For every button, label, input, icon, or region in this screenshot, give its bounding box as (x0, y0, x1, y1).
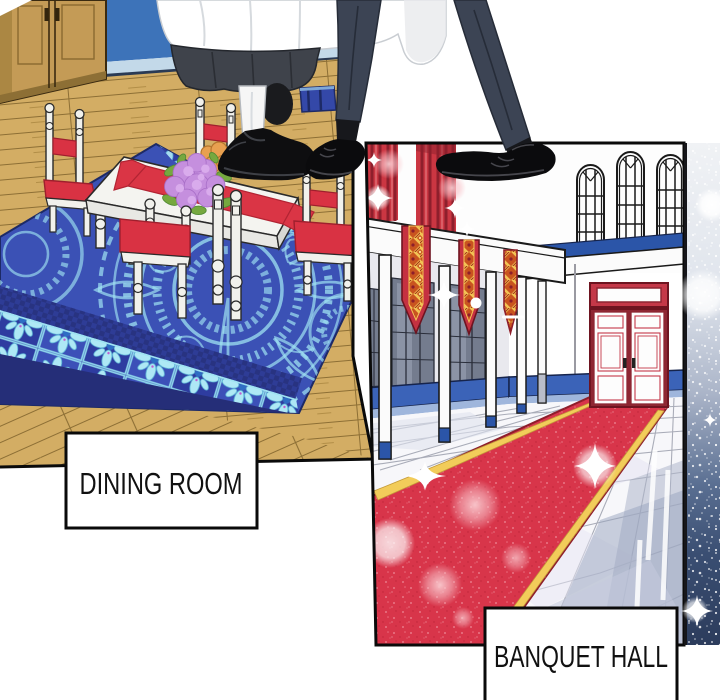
svg-text:DINING ROOM: DINING ROOM (80, 466, 243, 501)
svg-text:BANQUET HALL: BANQUET HALL (494, 639, 668, 674)
